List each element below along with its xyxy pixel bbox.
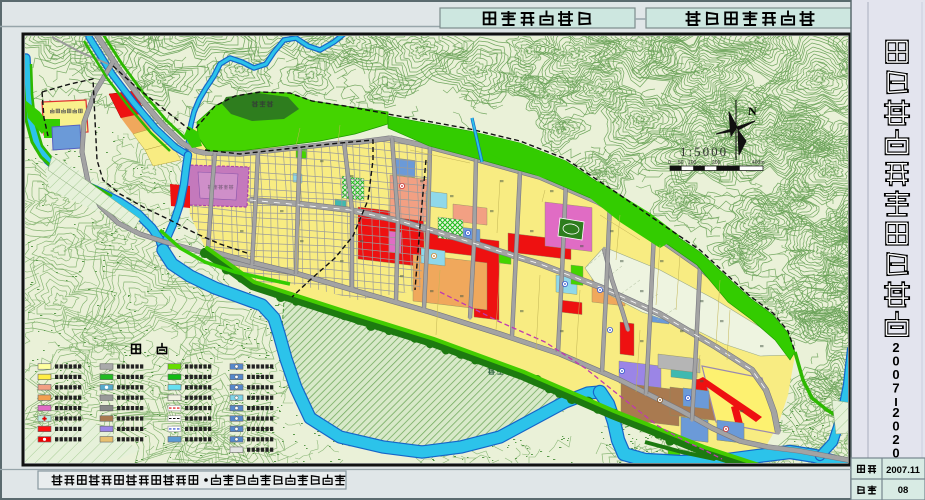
svg-text:7: 7 [892,381,899,396]
svg-text:08: 08 [898,485,909,496]
svg-text:100: 100 [688,160,697,166]
svg-text:50: 50 [678,160,684,166]
svg-text:N: N [748,104,757,118]
svg-text:200: 200 [712,160,721,166]
svg-text:1:5000: 1:5000 [680,144,728,159]
svg-text:2007.11: 2007.11 [886,465,921,476]
svg-text:400m: 400m [752,160,765,166]
svg-text:0: 0 [668,160,671,166]
